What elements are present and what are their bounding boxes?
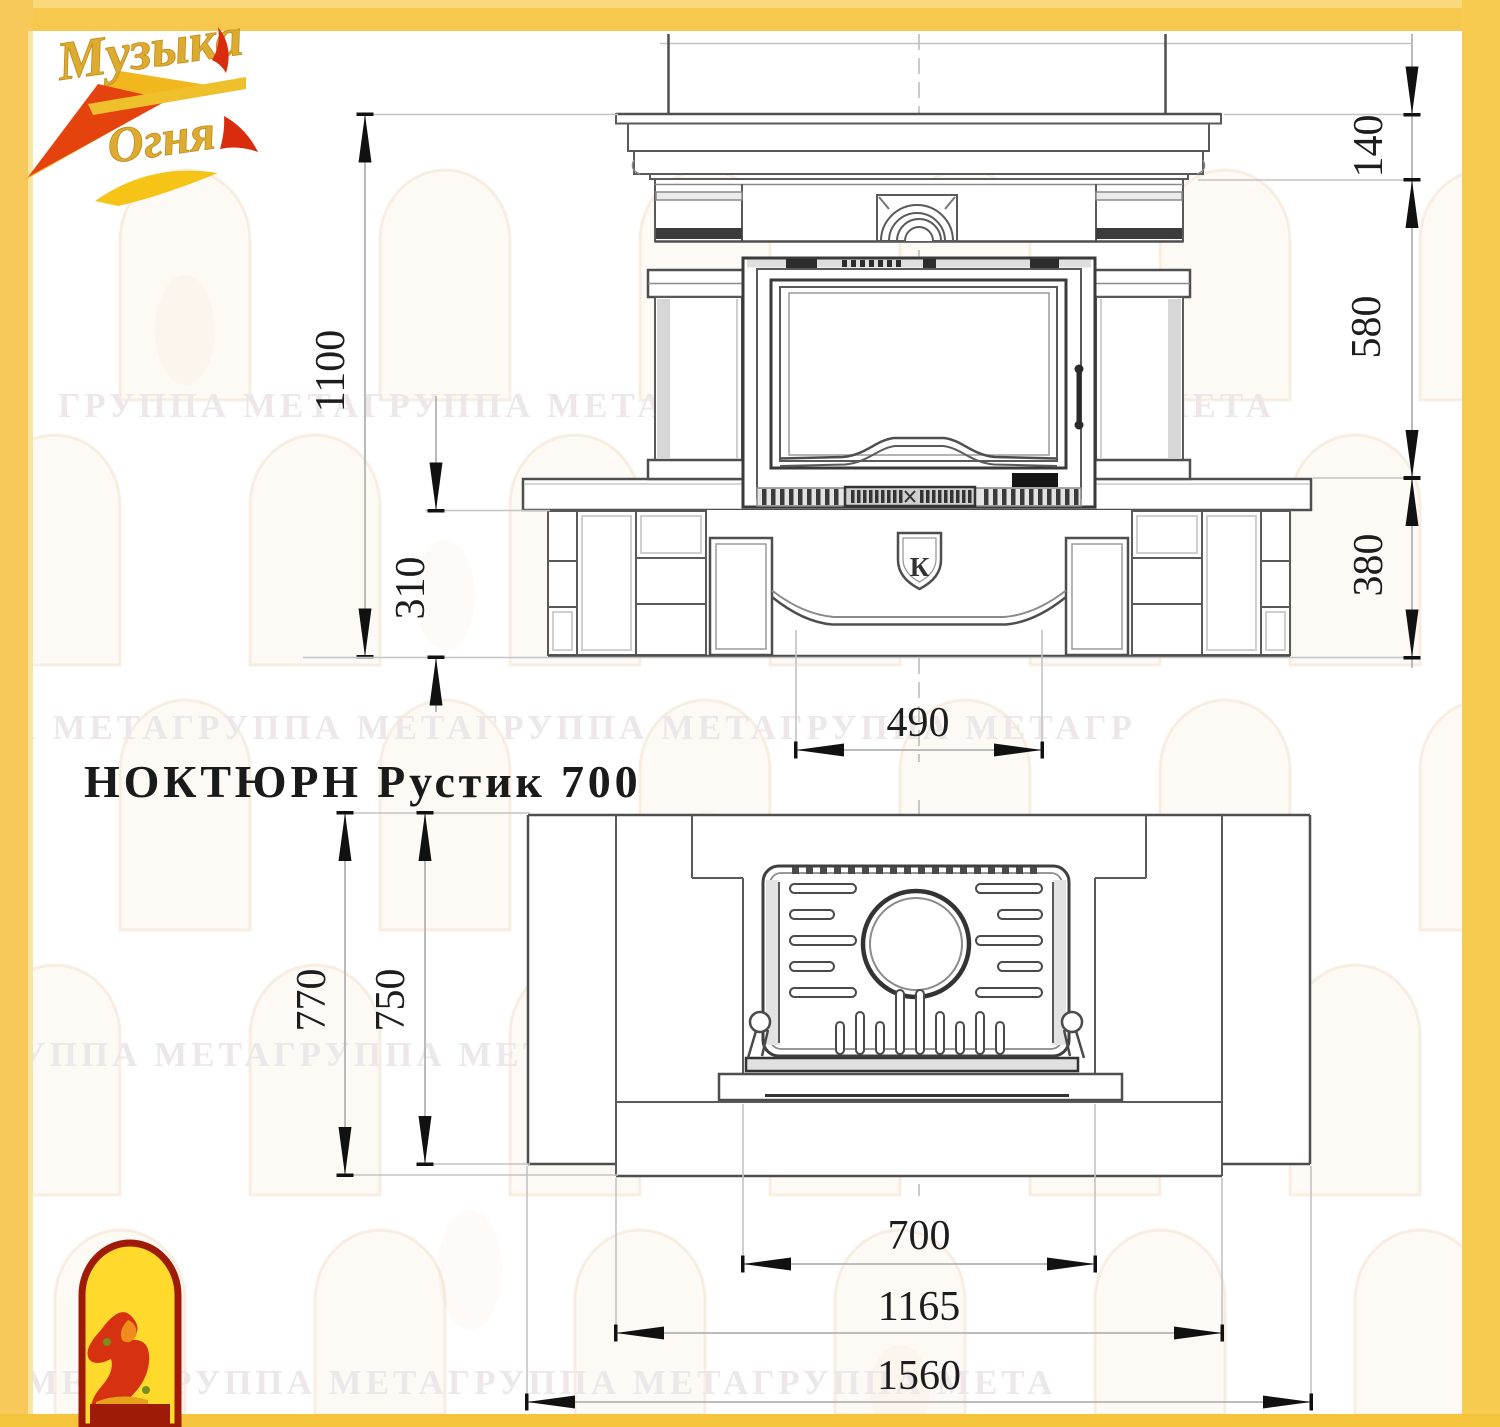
svg-text:К: К <box>910 552 930 582</box>
svg-text:580: 580 <box>1344 296 1390 359</box>
svg-text:НОКТЮРН Рустик 700: НОКТЮРН Рустик 700 <box>84 756 641 807</box>
svg-text:1100: 1100 <box>308 330 354 412</box>
svg-text:ППА МЕТАГРУППА МЕТАГРУППА МЕТА: ППА МЕТАГРУППА МЕТАГРУППА МЕТАГРУППА МЕТ… <box>0 708 1136 747</box>
svg-text:140: 140 <box>1346 115 1392 178</box>
svg-text:1165: 1165 <box>878 1284 960 1330</box>
svg-text:700: 700 <box>888 1213 951 1259</box>
svg-text:1560: 1560 <box>877 1353 961 1399</box>
svg-text:750: 750 <box>368 969 414 1032</box>
svg-text:380: 380 <box>1346 534 1392 597</box>
svg-text:310: 310 <box>388 557 434 620</box>
svg-text:770: 770 <box>289 969 335 1032</box>
svg-text:490: 490 <box>887 700 950 746</box>
